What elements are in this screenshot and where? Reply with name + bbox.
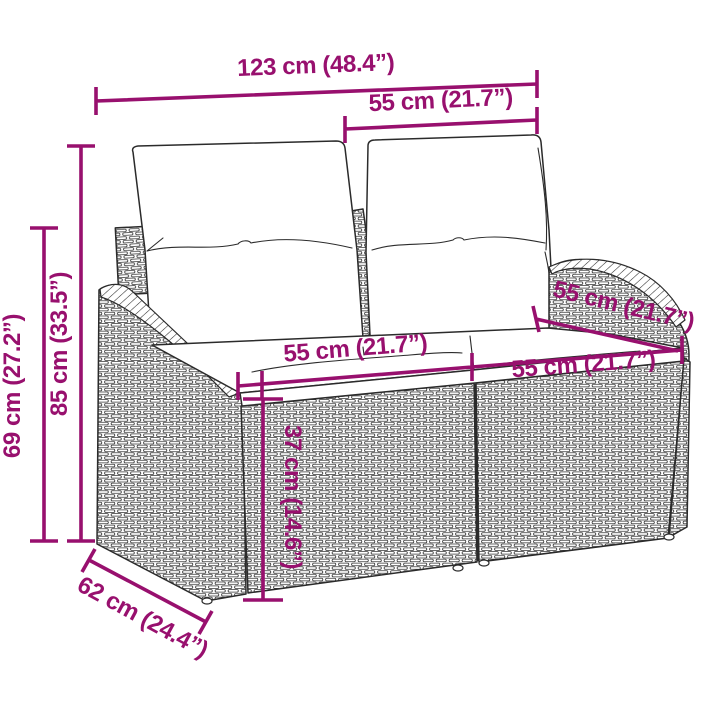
sofa-foot — [479, 560, 489, 566]
sofa-foot — [664, 534, 674, 540]
dim-total-height-label: 85 cm (33.5”) — [46, 272, 73, 416]
back-cushion-left — [133, 141, 363, 353]
dim-frame-height-label: 69 cm (27.2”) — [0, 314, 26, 458]
base-front-right-module — [476, 361, 684, 562]
sofa-foot — [453, 565, 463, 571]
diagram-canvas: 123 cm (48.4”) 55 cm (21.7”) 85 cm (33.5… — [0, 0, 720, 720]
sofa-dimension-diagram: 123 cm (48.4”) 55 cm (21.7”) 85 cm (33.5… — [0, 0, 720, 720]
dim-base-height-label: 37 cm (14.6”) — [279, 425, 306, 569]
base-front-left-module — [241, 383, 477, 593]
dim-overall-width-label: 123 cm (48.4”) — [237, 49, 395, 82]
dim-total-height: 85 cm (33.5”) — [46, 146, 95, 541]
sofa-foot — [202, 598, 212, 604]
dim-back-section-width: 55 cm (21.7”) — [345, 84, 537, 143]
back-cushion-right — [366, 135, 554, 342]
dim-back-section-width-label: 55 cm (21.7”) — [368, 84, 513, 118]
